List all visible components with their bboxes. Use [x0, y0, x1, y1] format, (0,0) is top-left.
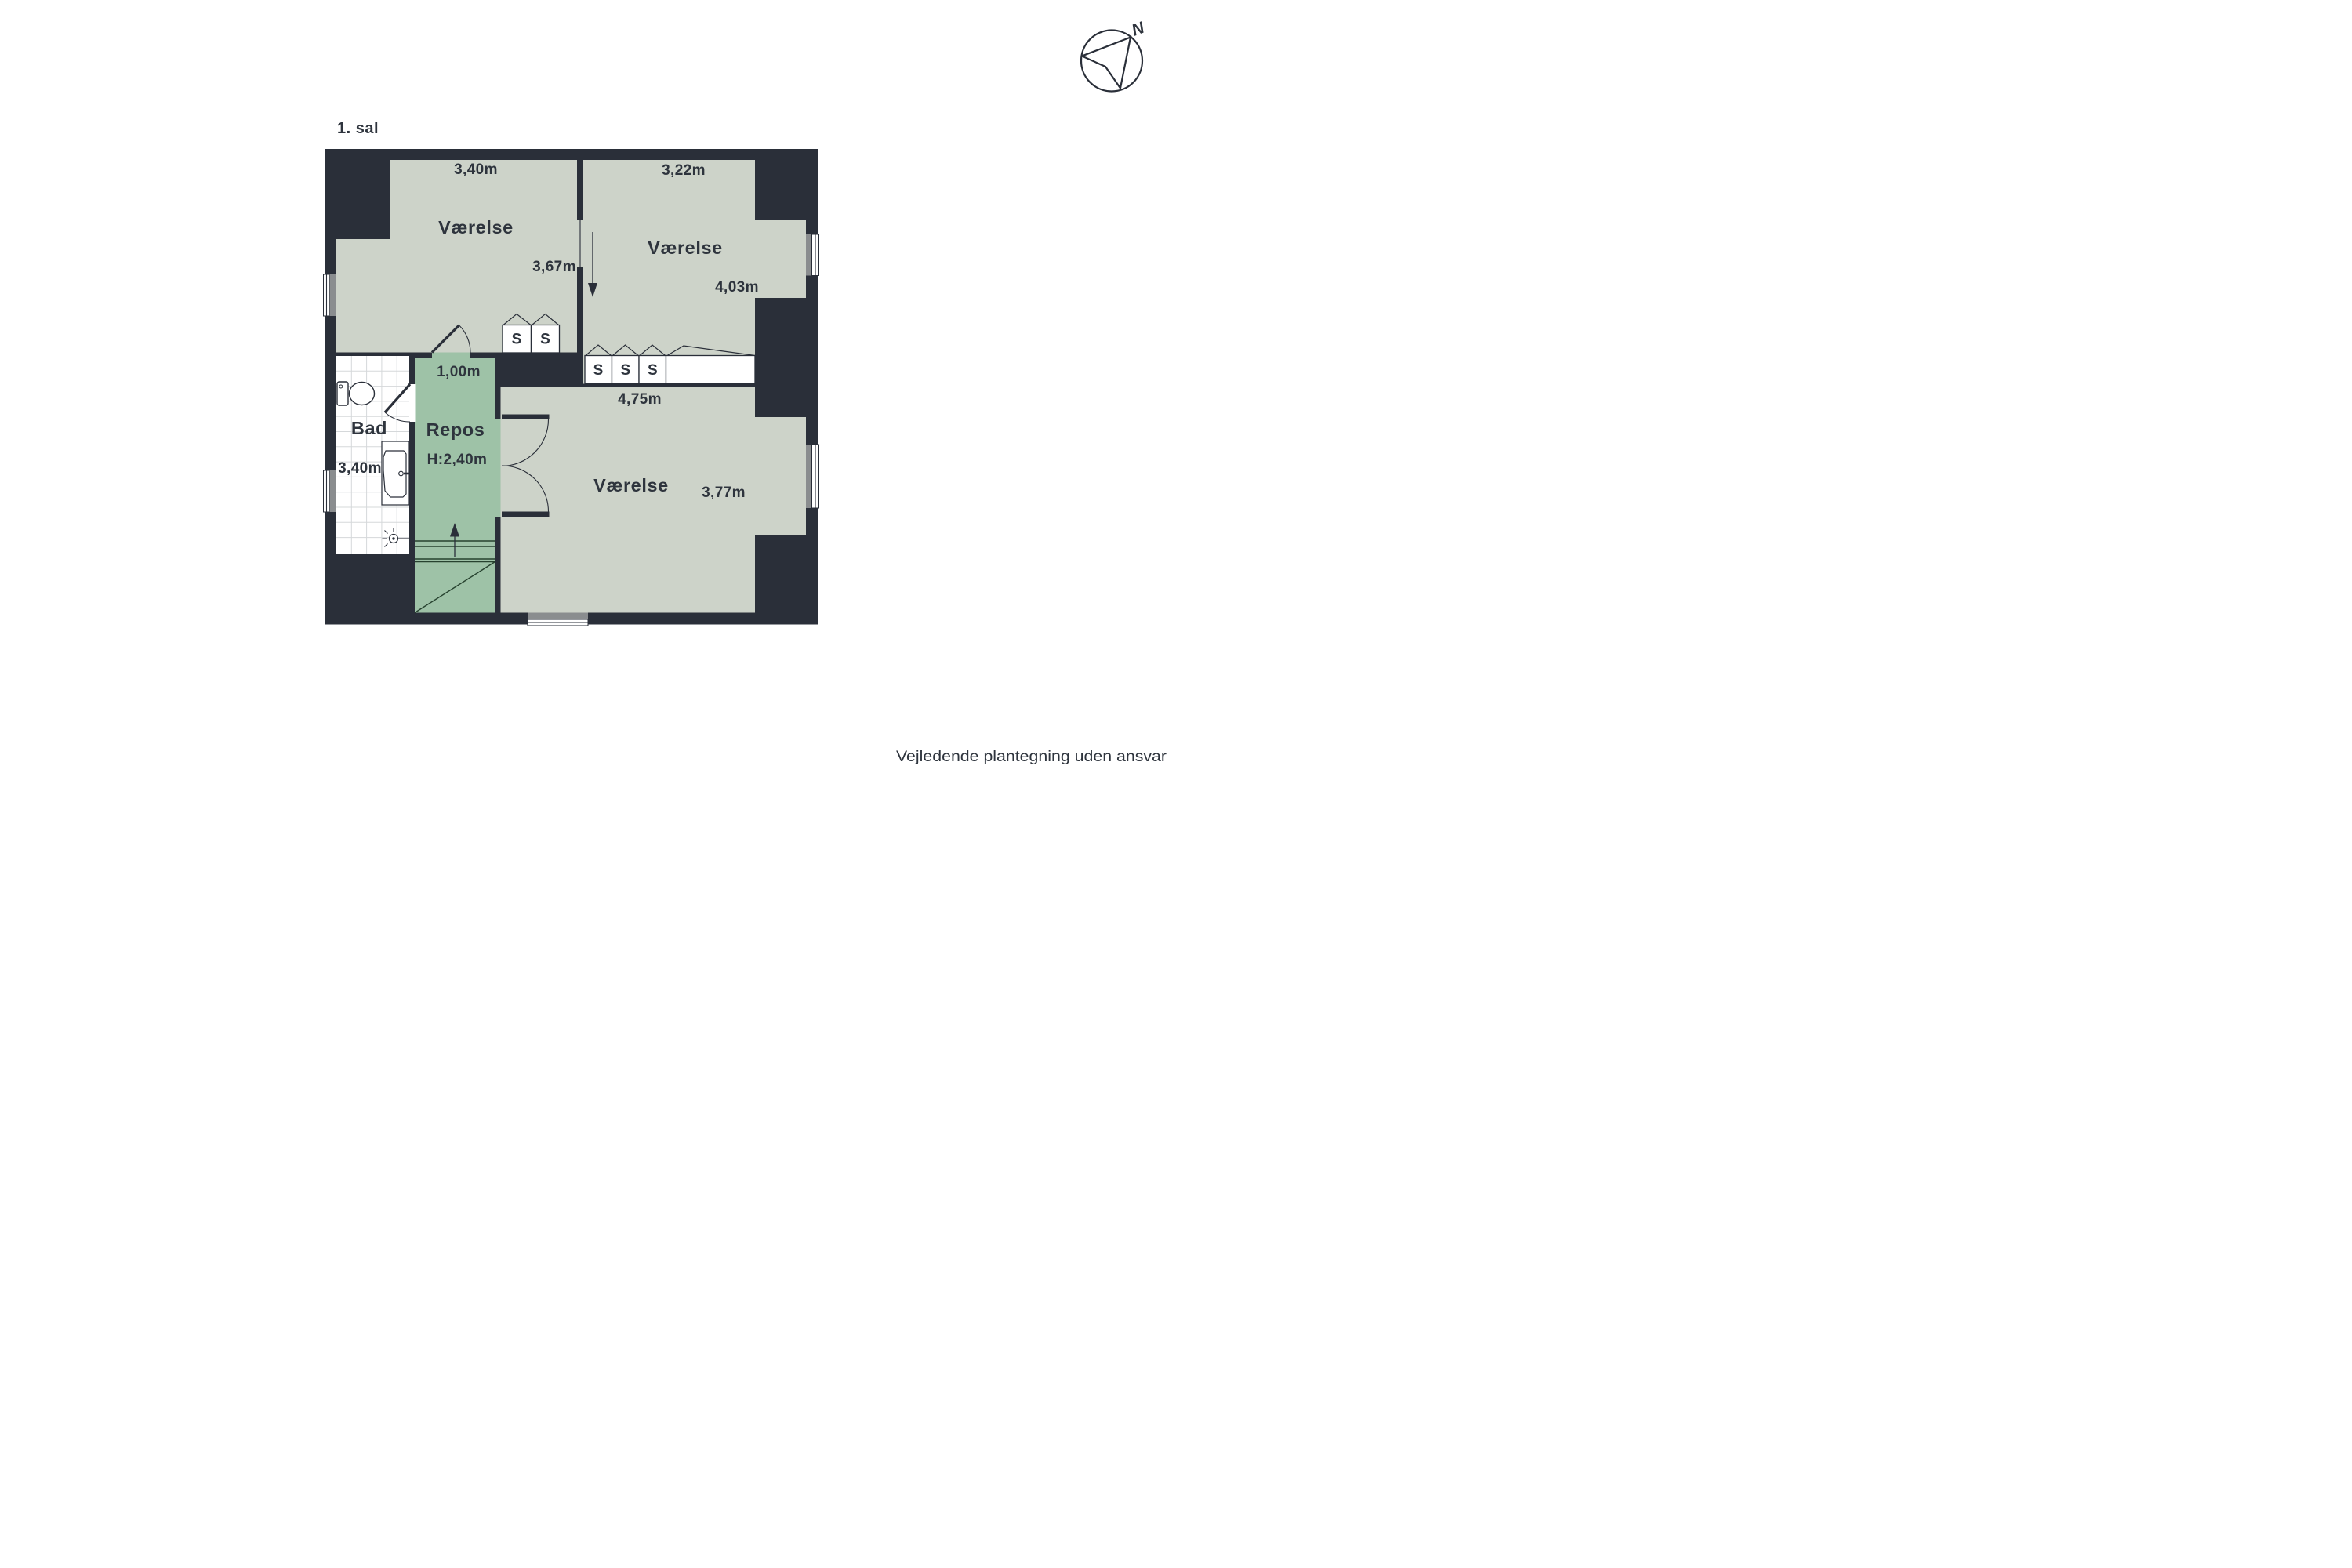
dimension-label: 3,22m — [662, 162, 706, 179]
door-gap-nw-repos — [432, 353, 470, 358]
room-name-label: Repos — [426, 419, 485, 440]
dimension-label: 4,03m — [715, 279, 759, 296]
door-gap-repos-s — [495, 419, 501, 517]
closet-letter: S — [593, 362, 604, 379]
room-name-label: Værelse — [648, 238, 723, 258]
closet-letter: S — [540, 332, 550, 348]
window-s-right — [806, 445, 819, 508]
dimension-label: 3,77m — [702, 485, 746, 501]
page-title: 1. sal — [337, 120, 379, 137]
dimension-label: 3,40m — [454, 162, 498, 178]
closet-letter: S — [648, 362, 658, 379]
floor-plan-drawing: S S S S S — [0, 0, 1176, 784]
repos-floor — [415, 358, 495, 613]
window-bad-left — [324, 470, 337, 512]
closet-letter: S — [512, 332, 522, 348]
disclaimer-text: Vejledende plantegning uden ansvar — [896, 749, 1167, 765]
dimension-label: 3,40m — [338, 460, 382, 477]
dimension-label: 4,75m — [618, 391, 662, 408]
room-name-label: Bad — [351, 418, 387, 438]
sink-icon — [382, 441, 409, 505]
dimension-label: 1,00m — [437, 364, 481, 380]
room-name-label: Værelse — [438, 217, 514, 238]
dimension-label: 3,67m — [532, 259, 576, 275]
toilet-icon — [337, 382, 375, 405]
closet-letter: S — [620, 362, 630, 379]
window-s-bottom — [528, 613, 588, 626]
window-ne-right — [806, 234, 819, 276]
compass-icon: N — [1081, 19, 1147, 92]
door-gap-bad — [409, 384, 416, 422]
north-label: N — [1129, 19, 1147, 40]
dimension-label: H:2,40m — [427, 452, 488, 468]
room-name-label: Værelse — [593, 475, 669, 495]
window-nw-left — [324, 274, 337, 316]
floor-plan-page: S S S S S — [0, 0, 1176, 784]
closet-cell-wide — [666, 356, 756, 384]
